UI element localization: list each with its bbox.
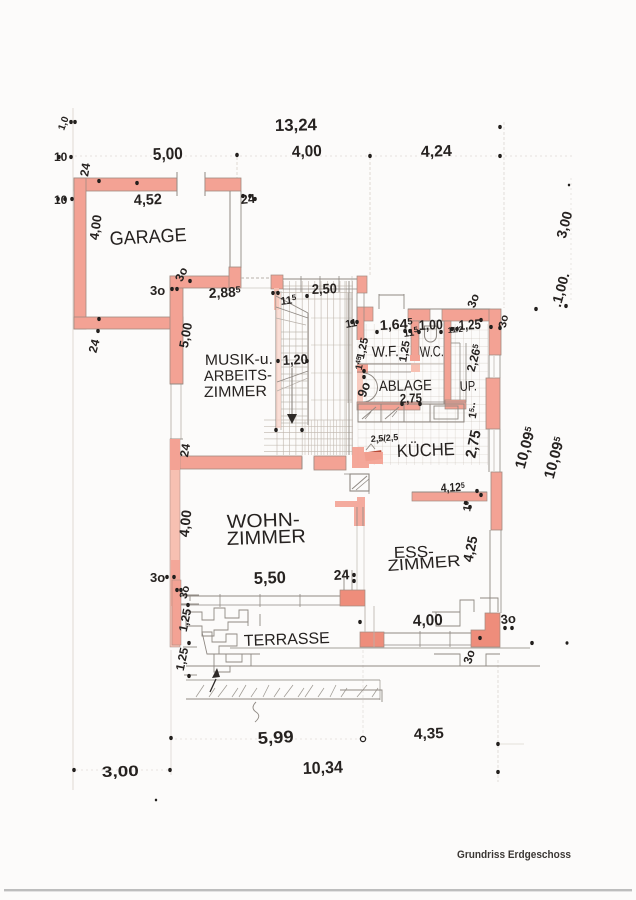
svg-text:3o: 3o: [500, 611, 516, 627]
svg-text:4,24: 4,24: [421, 143, 453, 161]
svg-text:1,25: 1,25: [458, 316, 481, 333]
svg-text:UP.: UP.: [460, 377, 478, 394]
svg-text:ZIMMER: ZIMMER: [226, 526, 306, 550]
svg-text:1,20: 1,20: [282, 351, 308, 368]
svg-text:24: 24: [77, 162, 93, 178]
svg-text:4,00: 4,00: [176, 509, 195, 538]
svg-text:ZIMMER: ZIMMER: [204, 383, 267, 401]
svg-text:4,35: 4,35: [414, 725, 445, 743]
svg-text:3,00: 3,00: [102, 763, 140, 781]
svg-text:W.F.: W.F.: [372, 343, 400, 361]
svg-text:5,00: 5,00: [152, 144, 183, 164]
svg-text:Grundriss Erdgeschoss: Grundriss Erdgeschoss: [457, 849, 571, 861]
svg-text:W.C.: W.C.: [420, 343, 445, 361]
svg-text:5,50: 5,50: [253, 568, 286, 588]
svg-text:TERRASSE: TERRASSE: [244, 630, 331, 650]
svg-text:3o: 3o: [150, 570, 165, 585]
svg-text:24: 24: [333, 566, 350, 583]
svg-text:11: 11: [344, 317, 358, 331]
svg-text:10,34: 10,34: [302, 758, 343, 778]
svg-text:2,5/2,5: 2,5/2,5: [370, 432, 398, 444]
svg-text:KÜCHE: KÜCHE: [396, 439, 455, 461]
svg-text:4,52: 4,52: [134, 191, 163, 209]
svg-text:2,50: 2,50: [312, 280, 338, 297]
svg-text:1,00: 1,00: [419, 316, 444, 333]
svg-text:24: 24: [177, 442, 193, 458]
svg-text:13,24: 13,24: [275, 115, 318, 135]
svg-text:4,00: 4,00: [292, 143, 323, 161]
svg-text:3o: 3o: [150, 283, 165, 298]
svg-text:5,99: 5,99: [257, 727, 294, 748]
svg-text:4,00: 4,00: [413, 612, 444, 630]
svg-text:GARAGE: GARAGE: [109, 225, 187, 250]
svg-text:10: 10: [54, 150, 68, 164]
